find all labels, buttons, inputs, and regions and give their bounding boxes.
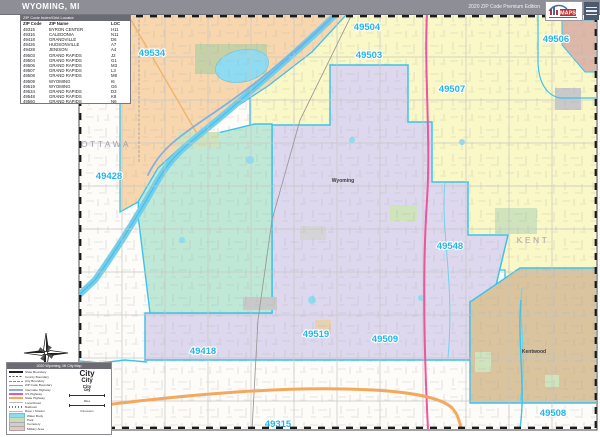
city-label-wyoming: Wyoming	[332, 178, 354, 184]
zip-label-49428: 49428	[96, 171, 122, 182]
legend-swatch-state	[9, 370, 23, 373]
zip-label-49507: 49507	[439, 84, 465, 95]
legend-place-samples: CityCityCityCity Miles Kilometers	[65, 369, 109, 431]
legend-swatch-mil	[9, 426, 25, 431]
edition-label: 2020 ZIP Code Premium Edition	[468, 4, 540, 10]
city-label-kentwood: Kentwood	[522, 349, 546, 355]
page-title: WYOMING, MI	[22, 2, 80, 11]
street-grid-texture	[80, 15, 596, 429]
logo-maps-text: MAPS	[560, 11, 576, 17]
place-name-sample: City	[65, 370, 109, 378]
legend-swatch-zip	[9, 384, 23, 387]
zip-label-49519: 49519	[303, 329, 329, 340]
zip-table-row: 49560GRAND RAPIDSN6	[21, 99, 130, 104]
zip-label-49508: 49508	[540, 408, 566, 419]
zip-label-49506: 49506	[543, 34, 569, 45]
county-label-ottawa: OTTAWA	[81, 139, 131, 149]
map-sheet: 4953449504495034950649507494284954849519…	[0, 0, 600, 437]
zip-table-cell: GRAND RAPIDS	[49, 99, 111, 104]
legend-swatch-county	[9, 375, 23, 378]
legend-item-label: Military Area	[27, 427, 44, 431]
scale-label-miles: Miles	[65, 400, 109, 403]
zip-label-49418: 49418	[190, 346, 216, 357]
scale-label-km: Kilometers	[65, 410, 109, 413]
legend-swatch-rd	[9, 401, 23, 404]
county-label-kent: KENT	[517, 235, 550, 245]
zip-label-49534: 49534	[139, 48, 166, 59]
publisher-logo: MAPS	[545, 1, 583, 21]
zip-code-index-table: ZIP Code Index/Grid Locator ZIP CodeZIP …	[20, 14, 131, 104]
legend-swatch-rail	[9, 405, 23, 408]
legend-swatch-city	[9, 379, 23, 382]
logo-edition-badge	[584, 2, 599, 20]
legend-swatch-st	[9, 397, 23, 400]
zip-label-49509: 49509	[372, 334, 398, 345]
zip-label-49548: 49548	[437, 241, 463, 252]
zip-table-cell: N6	[111, 99, 129, 104]
scale-bar-miles	[69, 395, 105, 400]
legend-item: Military Area	[9, 426, 65, 430]
place-name-sample: City	[65, 389, 109, 393]
zip-label-49503: 49503	[356, 50, 382, 61]
title-bar: WYOMING, MI 2020 ZIP Code Premium Editio…	[0, 0, 600, 15]
legend-swatch-us	[9, 392, 23, 395]
scale-bar-km	[69, 405, 105, 410]
zip-label-49504: 49504	[354, 22, 381, 33]
map-legend: 2020 Wyoming, MI City Map State Boundary…	[6, 362, 112, 435]
zip-table-cell: 49560	[21, 99, 49, 104]
legend-swatch-int	[9, 388, 23, 391]
legend-items: State BoundaryCounty BoundaryCity Bounda…	[7, 369, 65, 431]
zip-table-body: ZIP CodeZIP NameLOC49315BYRON CENTERH114…	[21, 21, 130, 104]
